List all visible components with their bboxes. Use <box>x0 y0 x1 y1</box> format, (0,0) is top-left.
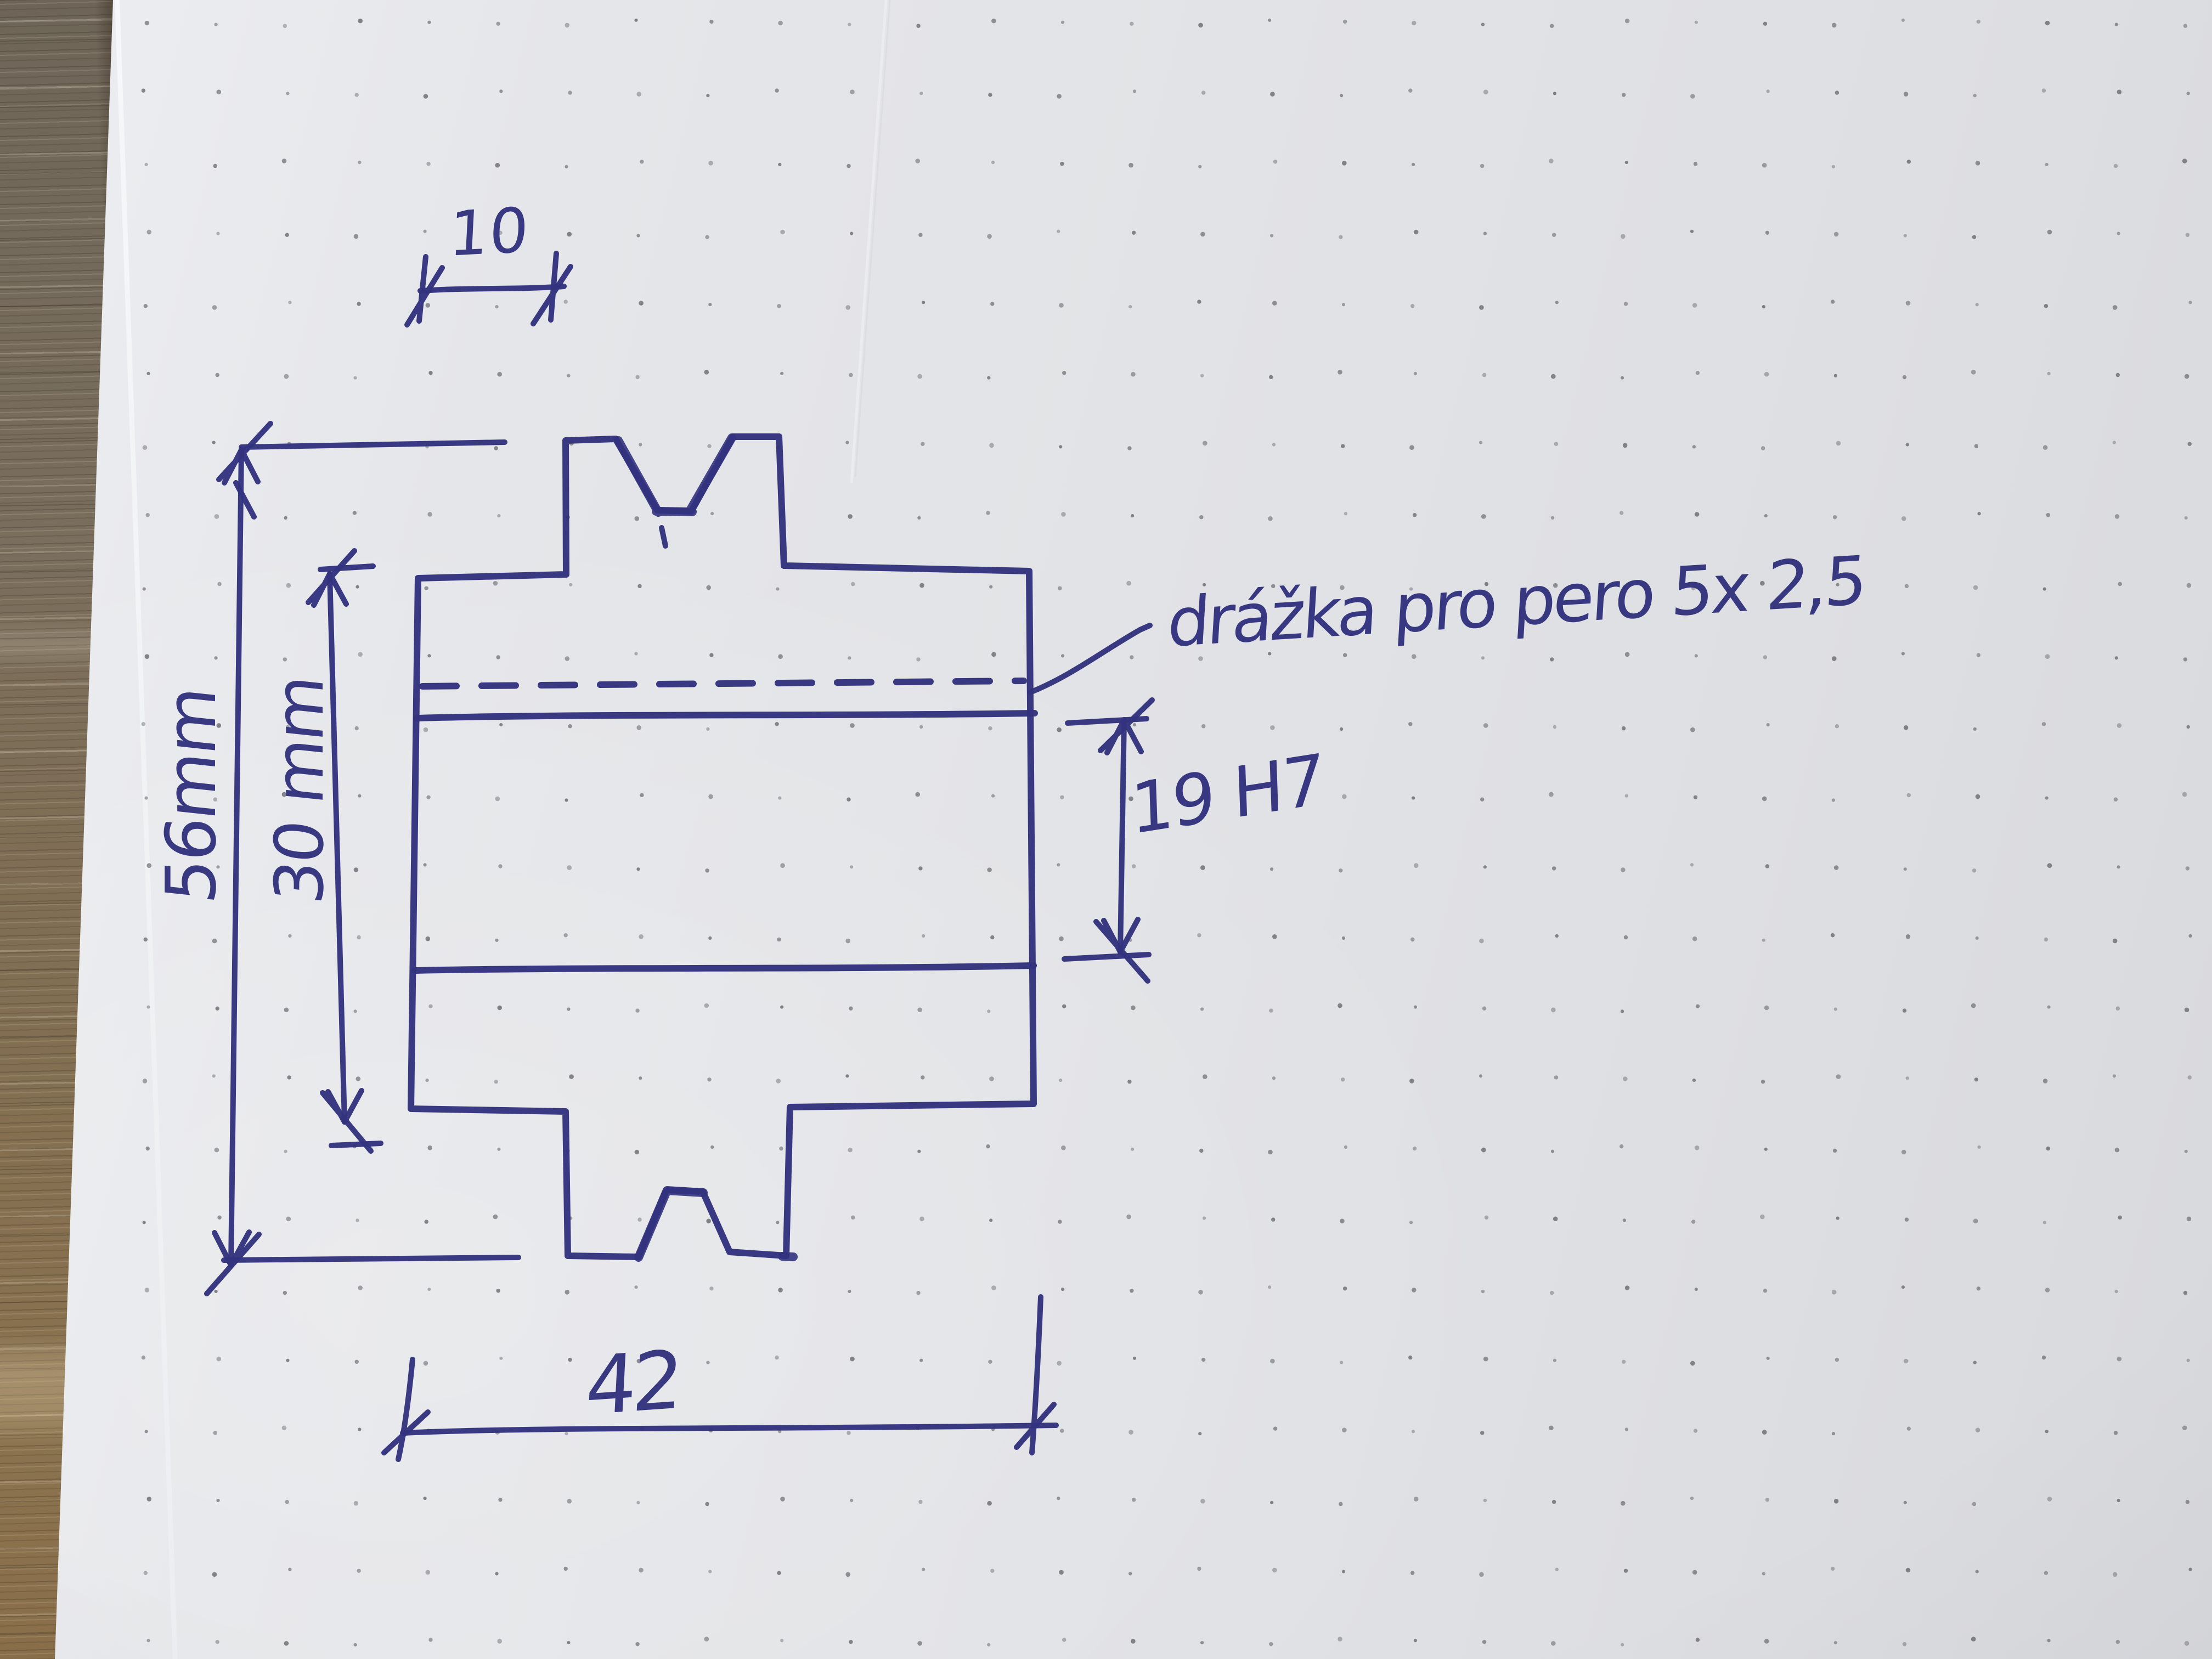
grid-dot <box>919 1359 923 1362</box>
grid-dot <box>1764 1639 1769 1644</box>
grid-dot <box>2047 1639 2051 1642</box>
grid-dot <box>1062 1638 1066 1641</box>
grid-dot <box>495 939 498 942</box>
grid-dot <box>1904 725 1909 730</box>
grid-dot <box>780 1639 783 1642</box>
grid-dot <box>2113 1572 2118 1577</box>
grid-dot <box>1621 867 1626 872</box>
grid-dot <box>1269 1008 1273 1012</box>
grid-dot <box>284 516 287 520</box>
grid-dot <box>1973 1361 1977 1364</box>
grid-dot <box>1271 1217 1275 1221</box>
grid-dot <box>2182 792 2187 797</box>
grid-dot <box>1906 301 1911 306</box>
grid-dot <box>358 1285 363 1290</box>
grid-dot <box>424 1361 428 1366</box>
grid-dot <box>2114 164 2118 168</box>
grid-dot <box>2118 582 2122 586</box>
grid-dot <box>215 1148 219 1153</box>
grid-dot <box>636 92 641 97</box>
grid-dot <box>704 1637 709 1641</box>
grid-dot <box>845 939 850 944</box>
grid-dot <box>1553 725 1556 729</box>
grid-dot <box>565 656 570 661</box>
grid-dot <box>146 1006 150 1009</box>
grid-dot <box>2113 1074 2116 1077</box>
grid-dot <box>2187 1359 2190 1362</box>
grid-dot <box>987 1009 990 1013</box>
grid-dot <box>921 1075 924 1079</box>
bore-line-top <box>417 713 1035 718</box>
grid-dot <box>635 516 640 521</box>
grid-dot <box>1696 1005 1700 1008</box>
grid-dot <box>1127 1080 1131 1084</box>
grid-dot <box>1692 303 1697 308</box>
grid-dot <box>358 652 363 657</box>
grid-dot <box>848 514 853 519</box>
grid-dot <box>1976 161 1980 166</box>
label-hub-diameter: 30 mm <box>260 673 338 907</box>
grid-dot <box>286 1359 289 1362</box>
grid-dot <box>284 1008 289 1013</box>
grid-dot <box>2117 723 2122 728</box>
grid-dot <box>427 654 431 657</box>
grid-dot <box>1831 1567 1835 1571</box>
grid-dot <box>1270 867 1273 871</box>
grid-dot <box>2045 1430 2049 1433</box>
grid-dot <box>1973 585 1978 590</box>
grid-dot <box>1694 1429 1697 1432</box>
grid-dot <box>1061 512 1066 517</box>
grid-dot <box>1203 441 1207 446</box>
grid-dot <box>848 1148 853 1153</box>
grid-dot <box>1057 727 1062 732</box>
grid-dot <box>851 1216 855 1220</box>
grid-dot <box>1338 370 1342 375</box>
grid-dot <box>987 1643 990 1646</box>
grid-dot <box>2115 656 2118 659</box>
grid-dot <box>1342 161 1347 166</box>
grid-dot <box>354 1501 359 1506</box>
grid-dot <box>1127 446 1131 450</box>
grid-dot <box>217 89 222 94</box>
grid-dot <box>215 23 218 26</box>
grid-dot <box>1762 1572 1765 1575</box>
grid-dot <box>2116 373 2120 377</box>
grid-dot <box>1060 1429 1064 1432</box>
grid-dot <box>1695 1288 1698 1291</box>
grid-dot <box>1901 1285 1905 1289</box>
grid-dot <box>1343 20 1347 24</box>
grid-dot <box>780 863 785 868</box>
grid-dot <box>1762 163 1767 168</box>
grid-dot <box>2042 88 2046 92</box>
grid-dot <box>637 584 641 588</box>
grid-dot <box>354 376 357 380</box>
grid-dot <box>1273 1426 1277 1430</box>
grid-dot <box>1976 936 1979 940</box>
grid-dot <box>1408 722 1412 726</box>
grid-dot <box>848 23 851 26</box>
grid-dot <box>1765 1498 1769 1502</box>
grid-dot <box>922 301 925 304</box>
grid-dot <box>212 441 216 444</box>
grid-dot <box>1131 1006 1136 1011</box>
grid-dot <box>775 1356 778 1359</box>
grid-dot <box>497 372 502 377</box>
grid-dot <box>2046 1147 2050 1150</box>
grid-dot <box>636 725 641 730</box>
grid-dot <box>1412 1430 1415 1433</box>
grid-dot <box>637 1217 641 1221</box>
grid-dot <box>1344 1145 1347 1149</box>
grid-dot <box>778 1288 783 1293</box>
grid-dot <box>424 94 428 99</box>
grid-dot <box>990 935 994 939</box>
grid-dot <box>2187 92 2190 95</box>
grid-dot <box>2045 163 2049 166</box>
grid-dot <box>1834 1007 1837 1011</box>
grid-dot <box>147 1497 152 1502</box>
grid-dot <box>499 723 503 726</box>
grid-dot <box>1198 165 1201 168</box>
grid-dot <box>1550 1291 1554 1295</box>
grid-dot <box>1833 1149 1837 1153</box>
grid-dot <box>2113 305 2118 310</box>
grid-dot <box>1414 1639 1417 1642</box>
photo-of-hand-drawn-sketch: 10 56mm 30 mm 42 19 H7 drážka pro pero 5… <box>0 0 2212 1659</box>
label-keyway-note: drážka pro pero 5x 2,5 <box>1165 541 1867 662</box>
grid-dot <box>499 89 503 93</box>
grid-dot <box>1414 863 1419 868</box>
grid-dot <box>288 934 291 938</box>
grid-dot <box>143 1079 148 1084</box>
grid-dot <box>710 1145 714 1149</box>
grid-dot <box>1059 1079 1062 1082</box>
grid-dot <box>1835 724 1839 728</box>
grid-dot <box>357 302 360 306</box>
grid-dot <box>1551 1008 1556 1013</box>
grid-dot <box>1554 442 1558 446</box>
grid-dot <box>990 302 994 306</box>
grid-dot <box>1414 1006 1417 1009</box>
grid-dot <box>1059 303 1064 308</box>
grid-dot <box>636 234 640 237</box>
grid-dot <box>987 867 992 872</box>
grid-dot <box>1270 725 1275 730</box>
grid-dot <box>1268 516 1273 521</box>
grid-dot <box>1976 303 1979 306</box>
grid-dot <box>1622 726 1626 730</box>
grid-dot <box>143 1221 146 1224</box>
grid-dot <box>1761 1080 1765 1084</box>
grid-dot <box>1481 1290 1485 1293</box>
grid-dot <box>1832 165 1835 168</box>
grid-dot <box>1906 443 1909 446</box>
grid-dot <box>1977 1286 1980 1290</box>
grid-dot <box>634 1285 637 1289</box>
grid-dot <box>2116 1640 2120 1644</box>
grid-dot <box>1061 1145 1066 1150</box>
grid-dot <box>282 159 287 163</box>
grid-dot <box>989 585 992 589</box>
grid-dot <box>991 161 995 164</box>
grid-dot <box>2113 441 2116 444</box>
grid-dot <box>2185 1641 2190 1646</box>
grid-dot <box>780 1497 785 1502</box>
grid-dot <box>778 21 783 26</box>
grid-dot <box>2043 1079 2048 1084</box>
grid-dot <box>775 88 778 92</box>
grid-dot <box>1133 723 1136 726</box>
grid-dot <box>427 512 432 517</box>
grid-dot <box>425 1220 428 1223</box>
grid-dot <box>1978 512 1981 515</box>
grid-dot <box>1621 234 1626 239</box>
grid-dot <box>1481 1148 1486 1153</box>
grid-dot <box>355 726 359 730</box>
grid-dot <box>708 1570 712 1573</box>
grid-dot <box>146 1639 150 1642</box>
grid-dot <box>1479 1572 1484 1577</box>
grid-dot <box>847 798 850 802</box>
grid-dot <box>283 657 287 661</box>
grid-dot <box>428 1005 432 1008</box>
grid-dot <box>1130 1289 1133 1293</box>
grid-dot <box>2046 513 2050 517</box>
grid-dot <box>569 583 572 586</box>
grid-dot <box>1409 445 1414 450</box>
grid-dot <box>1270 234 1273 237</box>
grid-dot <box>356 1076 361 1081</box>
grid-dot <box>2044 304 2048 308</box>
grid-dot <box>212 305 217 310</box>
grid-dot <box>2043 588 2046 591</box>
grid-dot <box>1973 727 1977 731</box>
grid-dot <box>1131 1639 1136 1644</box>
grid-dot <box>427 1145 432 1150</box>
grid-dot <box>989 1076 994 1081</box>
grid-dot <box>778 654 783 659</box>
grid-dot <box>142 88 145 92</box>
grid-dot <box>1901 652 1905 655</box>
grid-dot <box>2045 1288 2050 1293</box>
grid-dot <box>1972 235 1976 239</box>
grid-dot <box>1130 22 1133 26</box>
grid-dot <box>1483 1499 1487 1502</box>
grid-dot <box>1133 1357 1136 1360</box>
grid-dot <box>848 656 851 659</box>
grid-dot <box>916 24 920 28</box>
grid-dot <box>1976 1570 1979 1573</box>
grid-dot <box>1201 724 1205 728</box>
grid-dot <box>1621 1501 1626 1506</box>
grid-dot <box>497 1148 500 1151</box>
grid-dot <box>1412 163 1415 166</box>
grid-dot <box>777 1571 781 1575</box>
grid-dot <box>1482 1007 1486 1011</box>
grid-dot <box>2117 89 2122 94</box>
grid-dot <box>845 1074 849 1077</box>
dimension-42 <box>384 1297 1056 1459</box>
grid-dot <box>283 1291 287 1295</box>
grid-dot <box>564 933 568 937</box>
grid-dot <box>284 1150 287 1153</box>
grid-dot <box>1269 375 1273 379</box>
grid-dot <box>426 936 431 941</box>
grid-dot <box>497 1639 502 1644</box>
grid-dot <box>1200 865 1205 870</box>
grid-dot <box>2045 797 2049 800</box>
grid-dot <box>1625 794 1628 798</box>
grid-dot <box>212 1074 216 1077</box>
grid-dot <box>639 934 644 939</box>
grid-dot <box>1694 795 1697 799</box>
grid-dot <box>1200 1007 1204 1011</box>
grid-dot <box>1903 1008 1906 1012</box>
grid-dot <box>1203 1074 1207 1079</box>
grid-dot <box>567 1007 570 1011</box>
grid-dot <box>1128 1430 1133 1435</box>
grid-dot <box>2185 516 2188 520</box>
grid-dot <box>426 303 431 308</box>
grid-dot <box>917 1150 921 1153</box>
grid-dot <box>1976 1427 1980 1432</box>
grid-dot <box>917 1008 922 1013</box>
grid-dot <box>776 1079 781 1084</box>
grid-dot <box>2186 866 2190 870</box>
grid-dot <box>780 1006 783 1009</box>
grid-dot <box>354 1643 357 1646</box>
grid-dot <box>2116 1007 2120 1011</box>
grid-dot <box>2114 798 2118 802</box>
grid-dot <box>355 93 359 97</box>
grid-dot <box>1555 934 1559 938</box>
grid-dot <box>1483 89 1488 94</box>
grid-dot <box>919 1217 924 1222</box>
grid-dot <box>1765 231 1769 235</box>
grid-dot <box>2188 1075 2192 1079</box>
grid-dot <box>850 89 855 94</box>
grid-dot <box>916 657 920 661</box>
grid-dot <box>1412 654 1417 659</box>
grid-dot <box>776 1221 779 1224</box>
grid-dot <box>1555 301 1559 304</box>
grid-dot <box>1977 653 1980 657</box>
grid-dot <box>142 1356 145 1359</box>
grid-dot <box>989 443 994 448</box>
grid-dot <box>709 20 713 24</box>
grid-dot <box>567 374 570 377</box>
grid-dot <box>213 164 217 168</box>
grid-dot <box>1692 1570 1697 1575</box>
grid-dot <box>1905 1217 1909 1221</box>
grid-dot <box>2043 445 2048 450</box>
grid-dot <box>424 1497 427 1500</box>
grid-dot <box>1132 864 1136 868</box>
grid-dot <box>495 305 498 308</box>
grid-dot <box>495 1572 498 1575</box>
grid-dot <box>425 586 428 590</box>
grid-dot <box>1762 939 1765 942</box>
grid-dot <box>1481 514 1486 519</box>
grid-dot <box>1126 1215 1131 1220</box>
grid-dot <box>640 160 644 163</box>
grid-dot <box>1200 374 1204 377</box>
grid-dot <box>640 793 644 797</box>
grid-dot <box>1906 1076 1909 1080</box>
grid-dot <box>987 234 992 239</box>
grid-dot <box>1834 374 1837 377</box>
grid-dot <box>1197 1567 1201 1571</box>
grid-dot <box>1412 21 1417 26</box>
grid-dot <box>1904 1501 1907 1504</box>
grid-dot <box>1554 1075 1558 1079</box>
grid-dot <box>1696 1638 1700 1641</box>
grid-dot <box>1480 164 1484 168</box>
grid-dot <box>354 867 359 872</box>
grid-dot <box>915 792 920 797</box>
grid-dot <box>1907 793 1911 797</box>
grid-dot <box>1479 305 1484 310</box>
grid-dot <box>706 727 709 731</box>
grid-dot <box>497 514 500 517</box>
grid-dot <box>1413 513 1417 517</box>
grid-dot <box>353 511 357 515</box>
grid-dot <box>216 232 219 235</box>
grid-dot <box>1198 23 1203 28</box>
grid-dot <box>216 1640 219 1644</box>
grid-dot <box>1479 939 1484 944</box>
grid-dot <box>1763 22 1767 26</box>
grid-dot <box>1126 581 1131 586</box>
grid-dot <box>565 1290 570 1295</box>
grid-dot <box>705 1502 709 1506</box>
grid-dot <box>1058 586 1062 590</box>
grid-dot <box>288 1568 291 1571</box>
grid-dot <box>1836 1216 1839 1220</box>
grid-dot <box>1907 1426 1911 1430</box>
grid-dot <box>778 163 781 166</box>
grid-dot <box>498 1498 502 1502</box>
grid-dot <box>1835 1358 1839 1362</box>
grid-dot <box>424 863 427 866</box>
grid-dot <box>1690 94 1695 99</box>
grid-dot <box>1197 933 1201 937</box>
grid-dot <box>567 1641 570 1644</box>
grid-dot <box>845 441 849 444</box>
grid-dot <box>1270 1359 1275 1364</box>
grid-dot <box>145 797 148 800</box>
grid-dot <box>2047 372 2051 375</box>
grid-dot <box>1131 1148 1134 1151</box>
grid-dot <box>564 300 568 303</box>
grid-dot <box>217 1216 221 1220</box>
grid-dot <box>706 94 709 97</box>
grid-dot <box>847 164 850 168</box>
grid-dot <box>1551 516 1554 520</box>
grid-dot <box>991 794 995 798</box>
grid-dot <box>2113 939 2118 944</box>
grid-dot <box>1060 162 1064 166</box>
grid-dot <box>354 234 359 239</box>
grid-dot <box>426 1570 431 1575</box>
grid-dot <box>1483 232 1487 235</box>
grid-dot <box>708 794 713 799</box>
grid-dot <box>918 233 922 237</box>
grid-dot <box>284 1641 289 1646</box>
grid-dot <box>215 656 218 659</box>
